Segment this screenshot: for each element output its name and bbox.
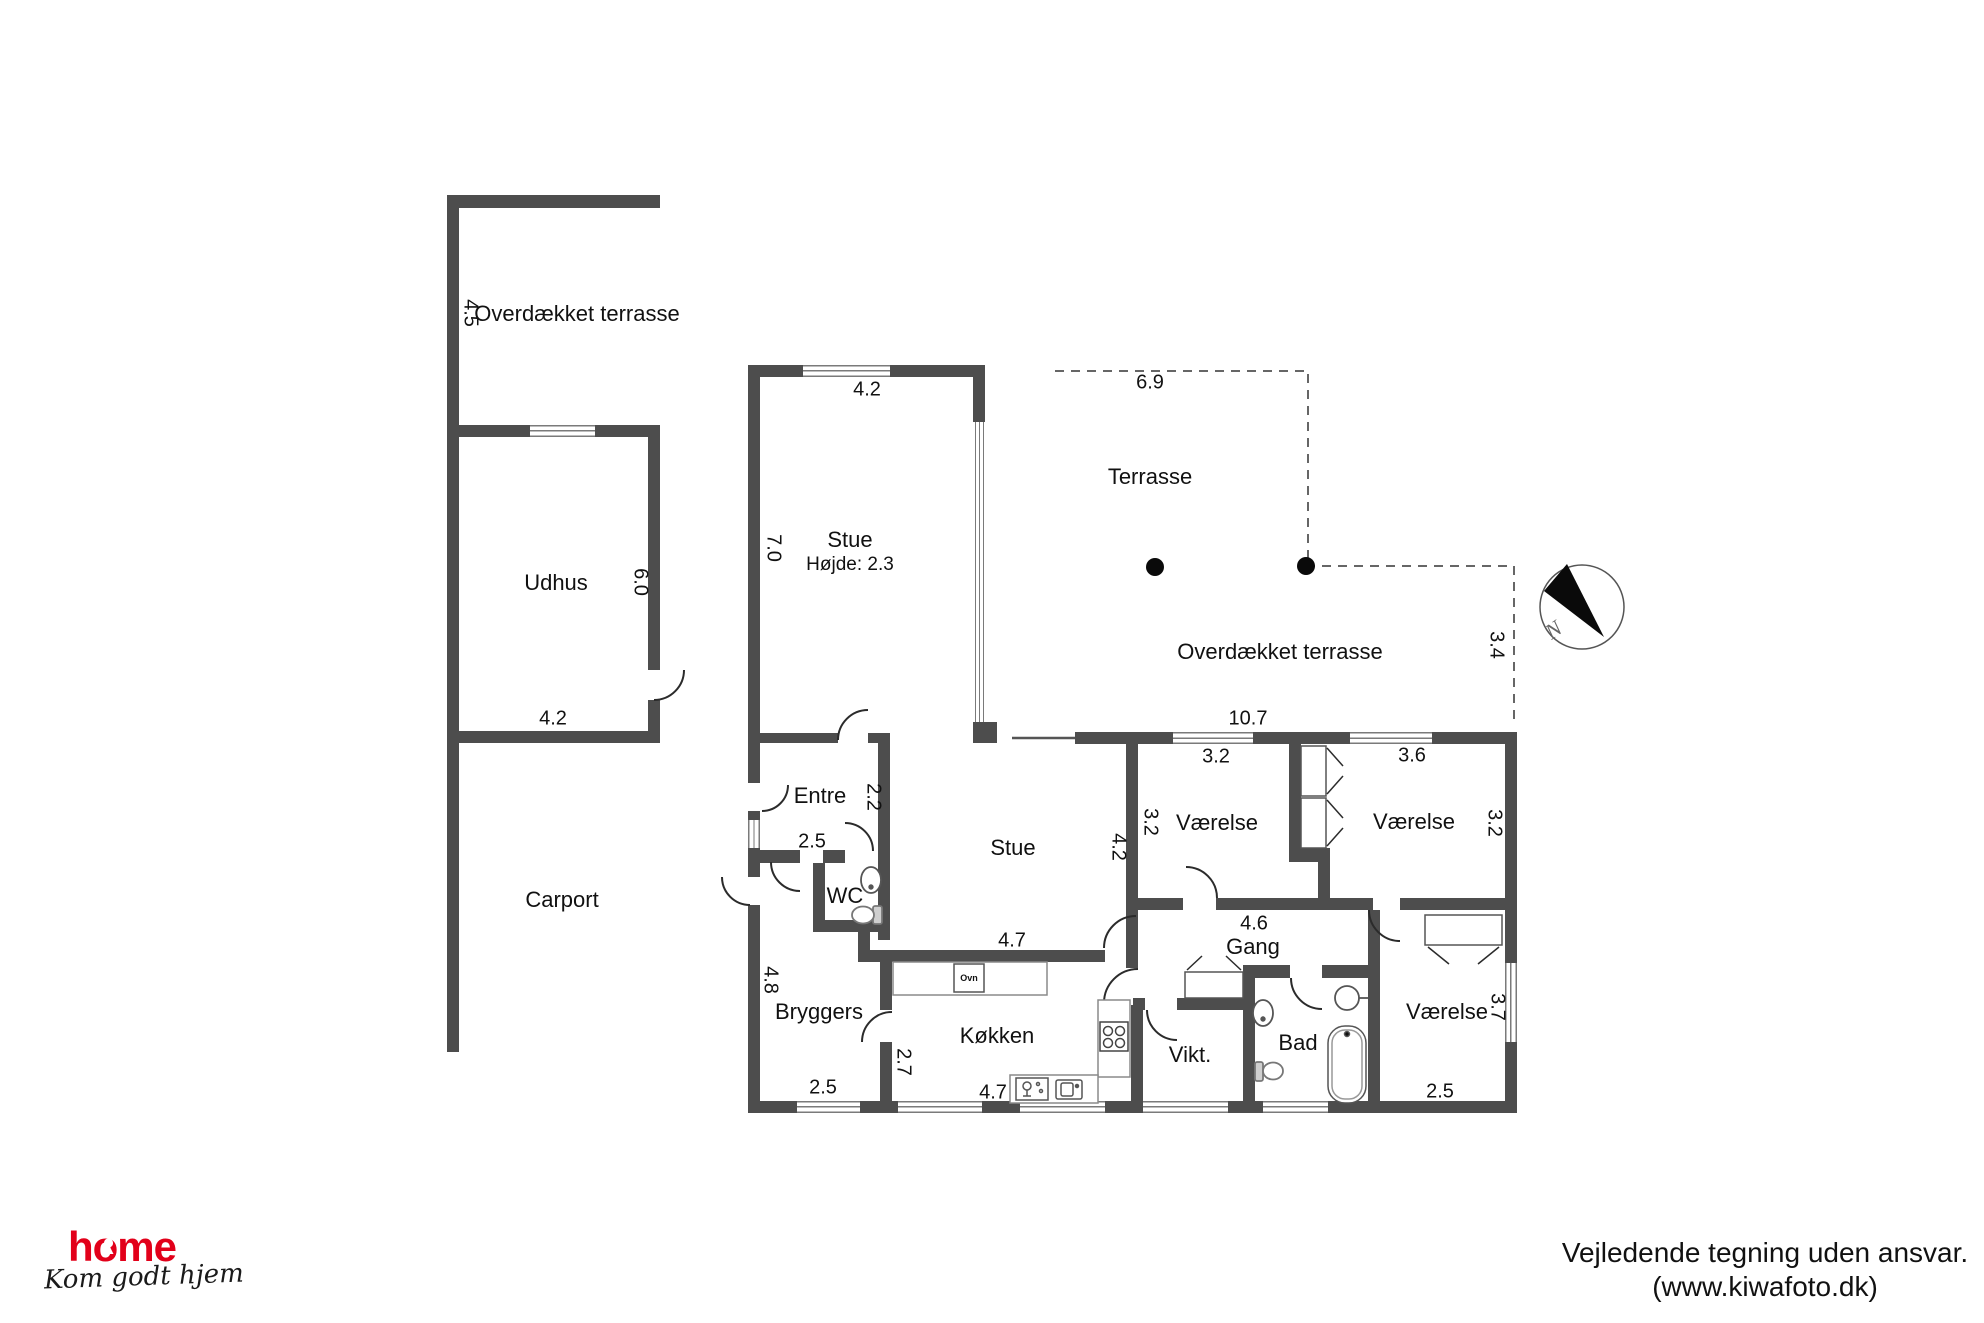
door-arc <box>1104 969 1138 1003</box>
terrace-dashed-outline <box>1055 371 1514 726</box>
washing-machine-icon <box>1335 986 1368 1010</box>
dim-bryggers-height: 4.8 <box>759 966 782 994</box>
room-label-bad: Bad <box>1278 1030 1317 1056</box>
pillar-dot <box>1297 557 1315 575</box>
dim-stue2-height: 4.2 <box>1107 833 1130 861</box>
dim-stue-main-height: 7.0 <box>762 534 785 562</box>
disclaimer-line2: (www.kiwafoto.dk) <box>1545 1270 1984 1304</box>
dim-koekken-width: 4.7 <box>979 1082 1007 1105</box>
bathtub-icon <box>1328 1026 1366 1103</box>
bad-toilet-icon <box>1255 1062 1283 1081</box>
stove-icon <box>1100 1022 1128 1051</box>
disclaimer-text: Vejledende tegning uden ansvar. (www.kiw… <box>1545 1236 1984 1304</box>
dim-terrace-covered-width: 10.7 <box>1229 708 1268 731</box>
dim-entre-height: 2.2 <box>862 783 885 811</box>
door-arc <box>838 710 868 740</box>
room-label-vaerelse-ne: Værelse <box>1373 809 1455 835</box>
dim-vaerelse-se-height: 3.7 <box>1486 993 1509 1021</box>
dim-vaerelse-ne-side: 3.2 <box>1483 809 1506 837</box>
room-label-gang: Gang <box>1226 934 1280 960</box>
room-label-vaerelse-se: Værelse <box>1406 999 1488 1025</box>
keyhole-icon <box>102 1238 115 1255</box>
room-label-bryggers: Bryggers <box>775 999 863 1025</box>
door-arc <box>1369 910 1400 941</box>
dim-koekken-height: 2.7 <box>892 1048 915 1076</box>
door-arc <box>771 862 800 891</box>
plan-graphics: N <box>0 0 1984 1323</box>
door-arc <box>1186 867 1217 898</box>
dim-udhus-height: 6.0 <box>629 568 652 596</box>
room-label-stue2: Stue <box>990 835 1035 861</box>
dim-stue-main-width: 4.2 <box>853 379 881 402</box>
door-arc <box>1104 916 1136 948</box>
closet-vikt <box>1185 956 1243 998</box>
door-arc <box>845 823 873 851</box>
dim-bryggers-width: 2.5 <box>809 1077 837 1100</box>
wc-sink-icon <box>861 867 881 893</box>
room-label-carport: Carport <box>525 887 598 913</box>
pillar-dot <box>1146 558 1164 576</box>
door-arc <box>1291 978 1322 1009</box>
room-label-stue-main: Stue <box>827 527 872 553</box>
bad-sink-icon <box>1253 1000 1273 1026</box>
door-arc <box>1147 1010 1177 1040</box>
room-label-terrace-open: Terrasse <box>1108 464 1192 490</box>
dim-terrace-open-width: 6.9 <box>1136 372 1164 395</box>
dishwasher-icon <box>1016 1078 1048 1100</box>
dim-gang-width: 4.6 <box>1240 913 1268 936</box>
room-label-wc: WC <box>827 883 864 909</box>
room-label-vikt: Vikt. <box>1169 1042 1211 1068</box>
room-label-koekken: Køkken <box>960 1023 1035 1049</box>
kitchen-sink-icon <box>1056 1080 1082 1099</box>
note-stue-ceiling-height: Højde: 2.3 <box>806 554 894 576</box>
dim-vaerelse-nw-side: 3.2 <box>1139 808 1162 836</box>
door-arc <box>762 785 788 811</box>
dim-terrace-covered-depth: 3.4 <box>1485 631 1508 659</box>
room-label-terrace-covered: Overdækket terrasse <box>1177 639 1382 665</box>
door-arc <box>862 1012 892 1042</box>
dim-terrace-left-height: 4.5 <box>459 299 482 327</box>
closet-se <box>1425 915 1502 964</box>
dim-vaerelse-ne-top: 3.6 <box>1398 745 1426 768</box>
dim-vaerelse-nw-top: 3.2 <box>1202 746 1230 769</box>
disclaimer-line1: Vejledende tegning uden ansvar. <box>1545 1236 1984 1270</box>
dim-udhus-width: 4.2 <box>539 708 567 731</box>
room-label-udhus: Udhus <box>524 570 588 596</box>
compass-icon: N <box>1539 564 1624 649</box>
floorplan-canvas: N Overdækket terrasse 4.5 Udhus 6.0 4.2 … <box>0 0 1984 1323</box>
dim-vaerelse-se-width: 2.5 <box>1426 1081 1454 1104</box>
door-arc <box>722 877 750 905</box>
room-label-terrace-left: Overdækket terrasse <box>474 301 679 327</box>
dim-entre-width: 2.5 <box>798 831 826 854</box>
terrace-pillar-dots <box>1146 557 1315 576</box>
label-oven: Ovn <box>960 973 978 983</box>
door-arc <box>654 670 684 700</box>
room-label-entre: Entre <box>794 783 847 809</box>
room-label-vaerelse-nw: Værelse <box>1176 810 1258 836</box>
closet-nw <box>1301 746 1343 848</box>
dim-stue2-width: 4.7 <box>998 930 1026 953</box>
